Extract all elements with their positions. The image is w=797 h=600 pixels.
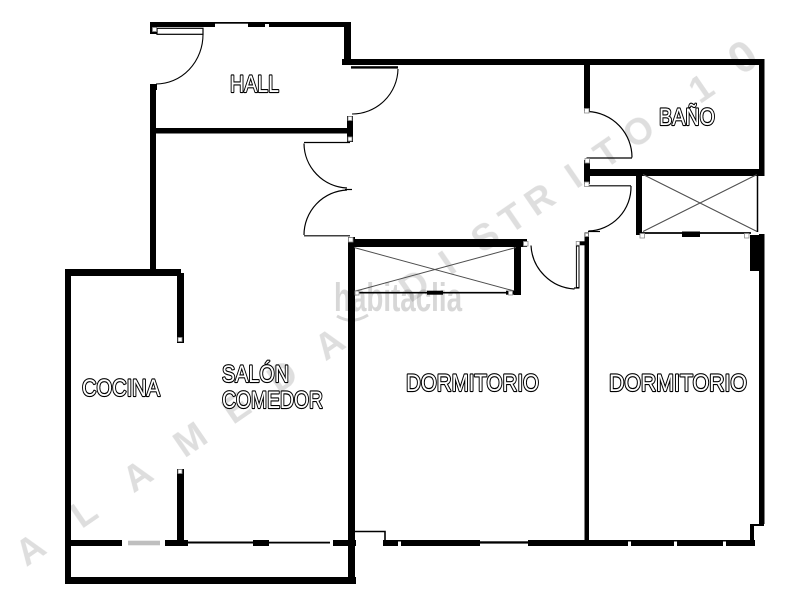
svg-text:HALL: HALL xyxy=(230,71,279,98)
svg-text:COCINA: COCINA xyxy=(82,375,160,402)
svg-text:DORMITORIO: DORMITORIO xyxy=(406,370,539,397)
svg-text:SALÓN: SALÓN xyxy=(222,361,289,388)
svg-text:BAÑO: BAÑO xyxy=(659,104,715,131)
svg-text:DORMITORIO: DORMITORIO xyxy=(609,370,747,397)
svg-text:COMEDOR: COMEDOR xyxy=(222,387,323,414)
